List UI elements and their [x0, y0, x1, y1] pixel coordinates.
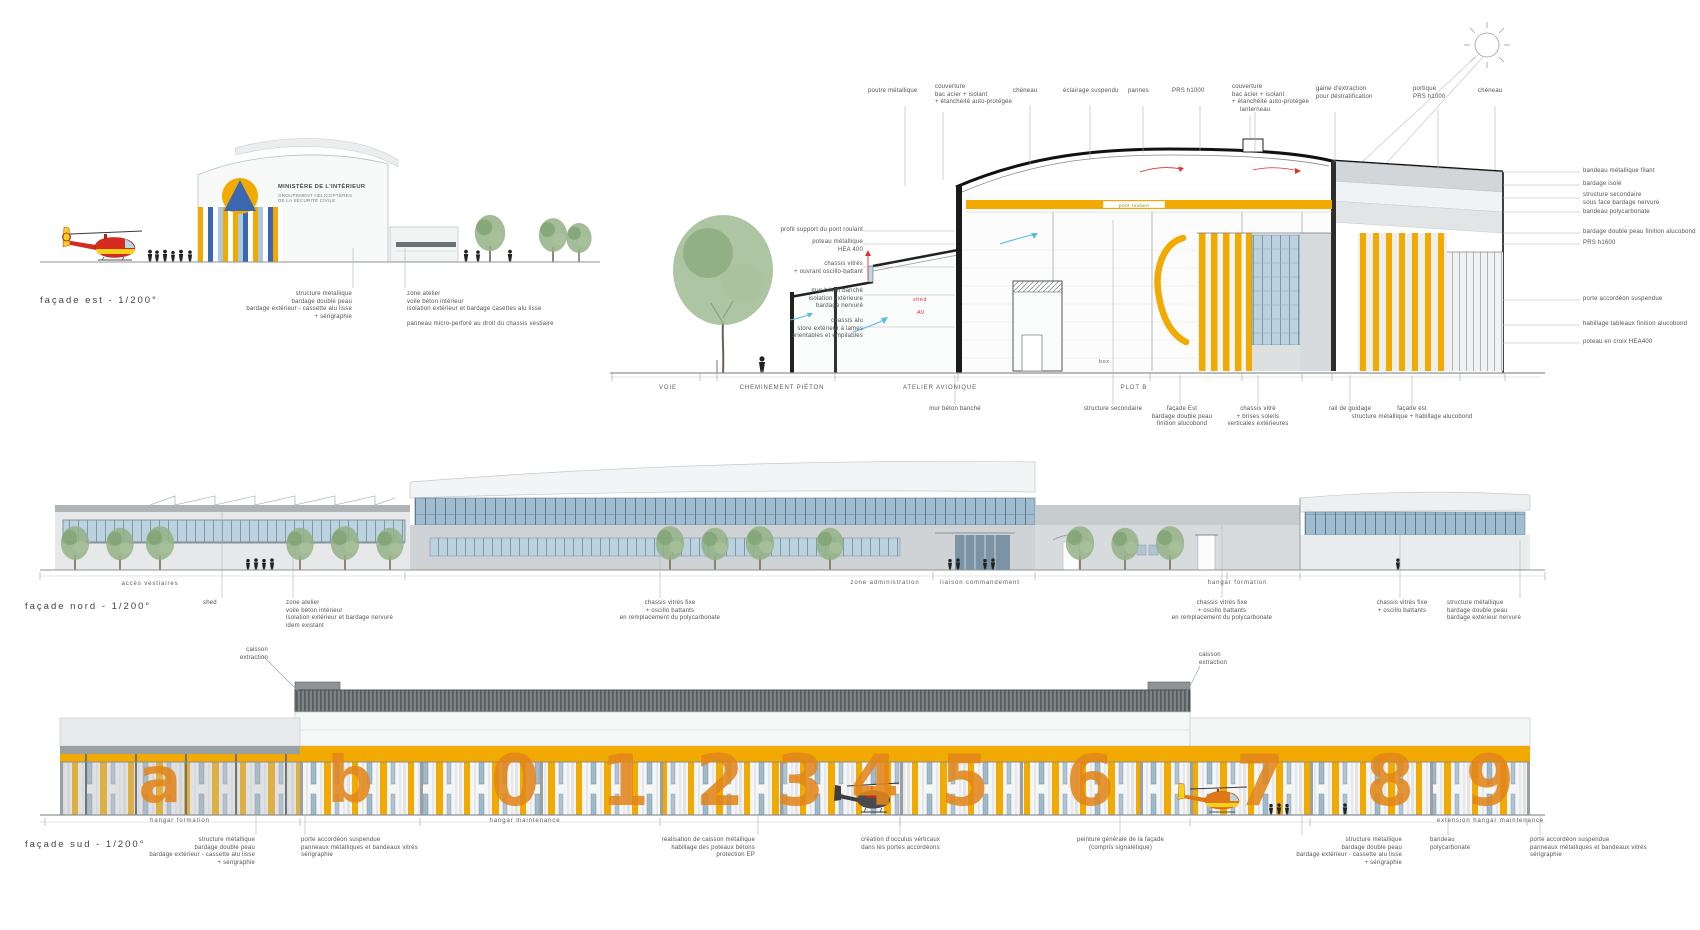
- section-label: poteau en croix HEA400: [1583, 339, 1652, 347]
- section-label: couverture bac acier + isolant + étanché…: [935, 84, 1012, 107]
- zone-label: liaison commandement: [915, 580, 1045, 586]
- facade-nord-title: façade nord - 1/200°: [25, 601, 151, 612]
- section-label: bandeau polycarbonate: [1583, 209, 1650, 217]
- section-label: porte accordéon suspendue: [1583, 296, 1662, 304]
- zone-label: accès vestiaires: [95, 581, 205, 587]
- section-label: pannes: [1128, 88, 1149, 96]
- door-mark: b: [318, 750, 382, 812]
- ministry-sign-line2: GROUPEMENT HÉLICOPTÈRES DE LA SÉCURITÉ C…: [278, 193, 352, 204]
- section-label: couverture bac acier + isolant + étanché…: [1232, 84, 1309, 107]
- sud-left-fascia: [60, 718, 300, 746]
- sud-annotation: bandeau polycarbonate: [1430, 837, 1470, 852]
- section-label: structure secondaire sous face bardage n…: [1583, 192, 1659, 207]
- hangar-door-elevation: [1197, 233, 1332, 371]
- section-label: chéneau: [1478, 88, 1502, 96]
- nord-annotation: shed: [203, 600, 217, 608]
- tree-icon: [539, 218, 567, 262]
- door-mark: 1: [593, 750, 657, 812]
- sud-annotation: structure métallique bardage double peau…: [115, 837, 255, 867]
- right-bay: [1332, 161, 1503, 373]
- nord-hangar-formation: [1300, 492, 1530, 570]
- door-mark: 4: [843, 750, 907, 812]
- concrete-wall: [956, 186, 962, 373]
- nord-annotation: structure métallique bardage double peau…: [1447, 600, 1521, 623]
- door-mark: 6: [1058, 750, 1122, 812]
- caisson-label: caisson extraction: [1199, 652, 1227, 667]
- nord-annotation: chassis vitrés fixe + oscillo battants: [1352, 600, 1452, 615]
- est-annotation: panneau micro-perforé au droit du chassi…: [407, 321, 554, 329]
- door-mark: 2: [688, 750, 752, 812]
- zone-label: hangar formation: [110, 818, 250, 824]
- door-mark: 8: [1358, 750, 1422, 812]
- pont-roulant-label: pont roulant: [1119, 203, 1149, 209]
- facade-nord-drawing: [15, 440, 1555, 640]
- section-label: façade est structure métallique + habill…: [1342, 406, 1482, 421]
- est-annotation: zone atelier voile béton intérieur isola…: [407, 291, 542, 314]
- nord-annotation: zone atelier voile béton intérieur isola…: [286, 600, 393, 630]
- shed-label: shed: [913, 297, 927, 303]
- av-label: AV: [917, 310, 925, 316]
- section-label: bandeau métallique filant: [1583, 168, 1655, 176]
- zone-label: VOIE: [640, 385, 696, 391]
- person-silhouette: [759, 356, 765, 373]
- section-label: bardage isolé: [1583, 181, 1622, 189]
- section-label: chéneau: [1013, 88, 1037, 96]
- zone-label: CHEMINEMENT PIÉTON: [712, 385, 852, 391]
- door-mark: 9: [1458, 750, 1522, 812]
- tree-icon: [566, 223, 591, 262]
- ministry-sign-line1: MINISTÈRE DE L'INTÉRIEUR: [278, 184, 365, 190]
- sud-annotation: réalisation de caisson métallique habill…: [615, 837, 755, 860]
- zone-label: ATELIER AVIONIQUE: [870, 385, 1010, 391]
- door-mark: 0: [483, 750, 547, 812]
- est-facade-stripes: [198, 207, 283, 262]
- section-label: PRS h1000: [1172, 88, 1205, 96]
- section-label: poutre métallique: [868, 88, 917, 96]
- est-annotation: structure métallique bardage double peau…: [212, 291, 352, 321]
- section-drawing: pont roulant box: [605, 20, 1700, 430]
- helicopter-icon: [63, 227, 143, 260]
- section-label: PRS h1600: [1583, 240, 1616, 248]
- section-label: mur béton banché isolation extérieure ba…: [745, 288, 863, 311]
- zone-label: hangar formation: [1180, 580, 1295, 586]
- sud-annotation: création d'occulus vérticaux dans les po…: [838, 837, 963, 852]
- section-label: profil support du pont roulant: [745, 227, 863, 235]
- door-mark: 3: [768, 750, 832, 812]
- section-label: chassis alu store extérieur à lames orie…: [745, 318, 863, 341]
- securite-civile-logo: [222, 178, 258, 214]
- sud-annotation: porte accordéon suspendue panneaux métal…: [1530, 837, 1647, 860]
- zone-label: extension hangar maintenance: [1398, 818, 1583, 824]
- nord-annotation: chassis vitrés fixe + oscillo battants e…: [1152, 600, 1292, 623]
- section-label: chassis vitrés + ouvrant oscillo-battant: [745, 261, 863, 276]
- sud-annotation: peinture générale de la façade (compris …: [1058, 837, 1183, 852]
- section-label: éclairage suspendu: [1063, 88, 1119, 96]
- section-label: gaine d'extraction pour déstratification: [1316, 86, 1373, 101]
- sud-annotation: structure métallique bardage double peau…: [1262, 837, 1402, 867]
- door-mark: a: [128, 750, 192, 812]
- section-label: mur béton banché: [905, 406, 1005, 414]
- box-label: box: [1099, 359, 1110, 365]
- lanterneau-label: lanterneau: [1240, 107, 1270, 115]
- sud-annotation: porte accordéon suspendue panneaux métal…: [301, 837, 418, 860]
- section-label: chassis vitré + brises soleils verticale…: [1208, 406, 1308, 429]
- door-mark: 5: [933, 750, 997, 812]
- zone-label: PLOT B: [1098, 385, 1170, 391]
- nord-annotation: chassis vitrés fixe + oscillo battants e…: [600, 600, 740, 623]
- shed-roofline: [150, 496, 395, 505]
- section-label: poteau métallique HEA 400: [745, 239, 863, 254]
- section-label: portique PRS h1000: [1413, 86, 1446, 101]
- facade-est-title: façade est - 1/200°: [40, 295, 158, 306]
- prs-portal-column: [1331, 161, 1336, 371]
- roof-inner-line: [962, 155, 1329, 192]
- zone-label: hangar maintenance: [450, 818, 600, 824]
- est-annex: [390, 227, 458, 262]
- architectural-sheet: façade est - 1/200° MINISTÈRE DE L'INTÉR…: [0, 0, 1700, 930]
- caisson-label: caisson extraction: [210, 647, 268, 662]
- section-label: habillage tableaux finition alucobond: [1583, 321, 1687, 329]
- lanterneau-box: [1243, 139, 1263, 152]
- section-label: bardage double peau finition alucobond: [1583, 229, 1696, 237]
- door-mark: 7: [1228, 750, 1292, 812]
